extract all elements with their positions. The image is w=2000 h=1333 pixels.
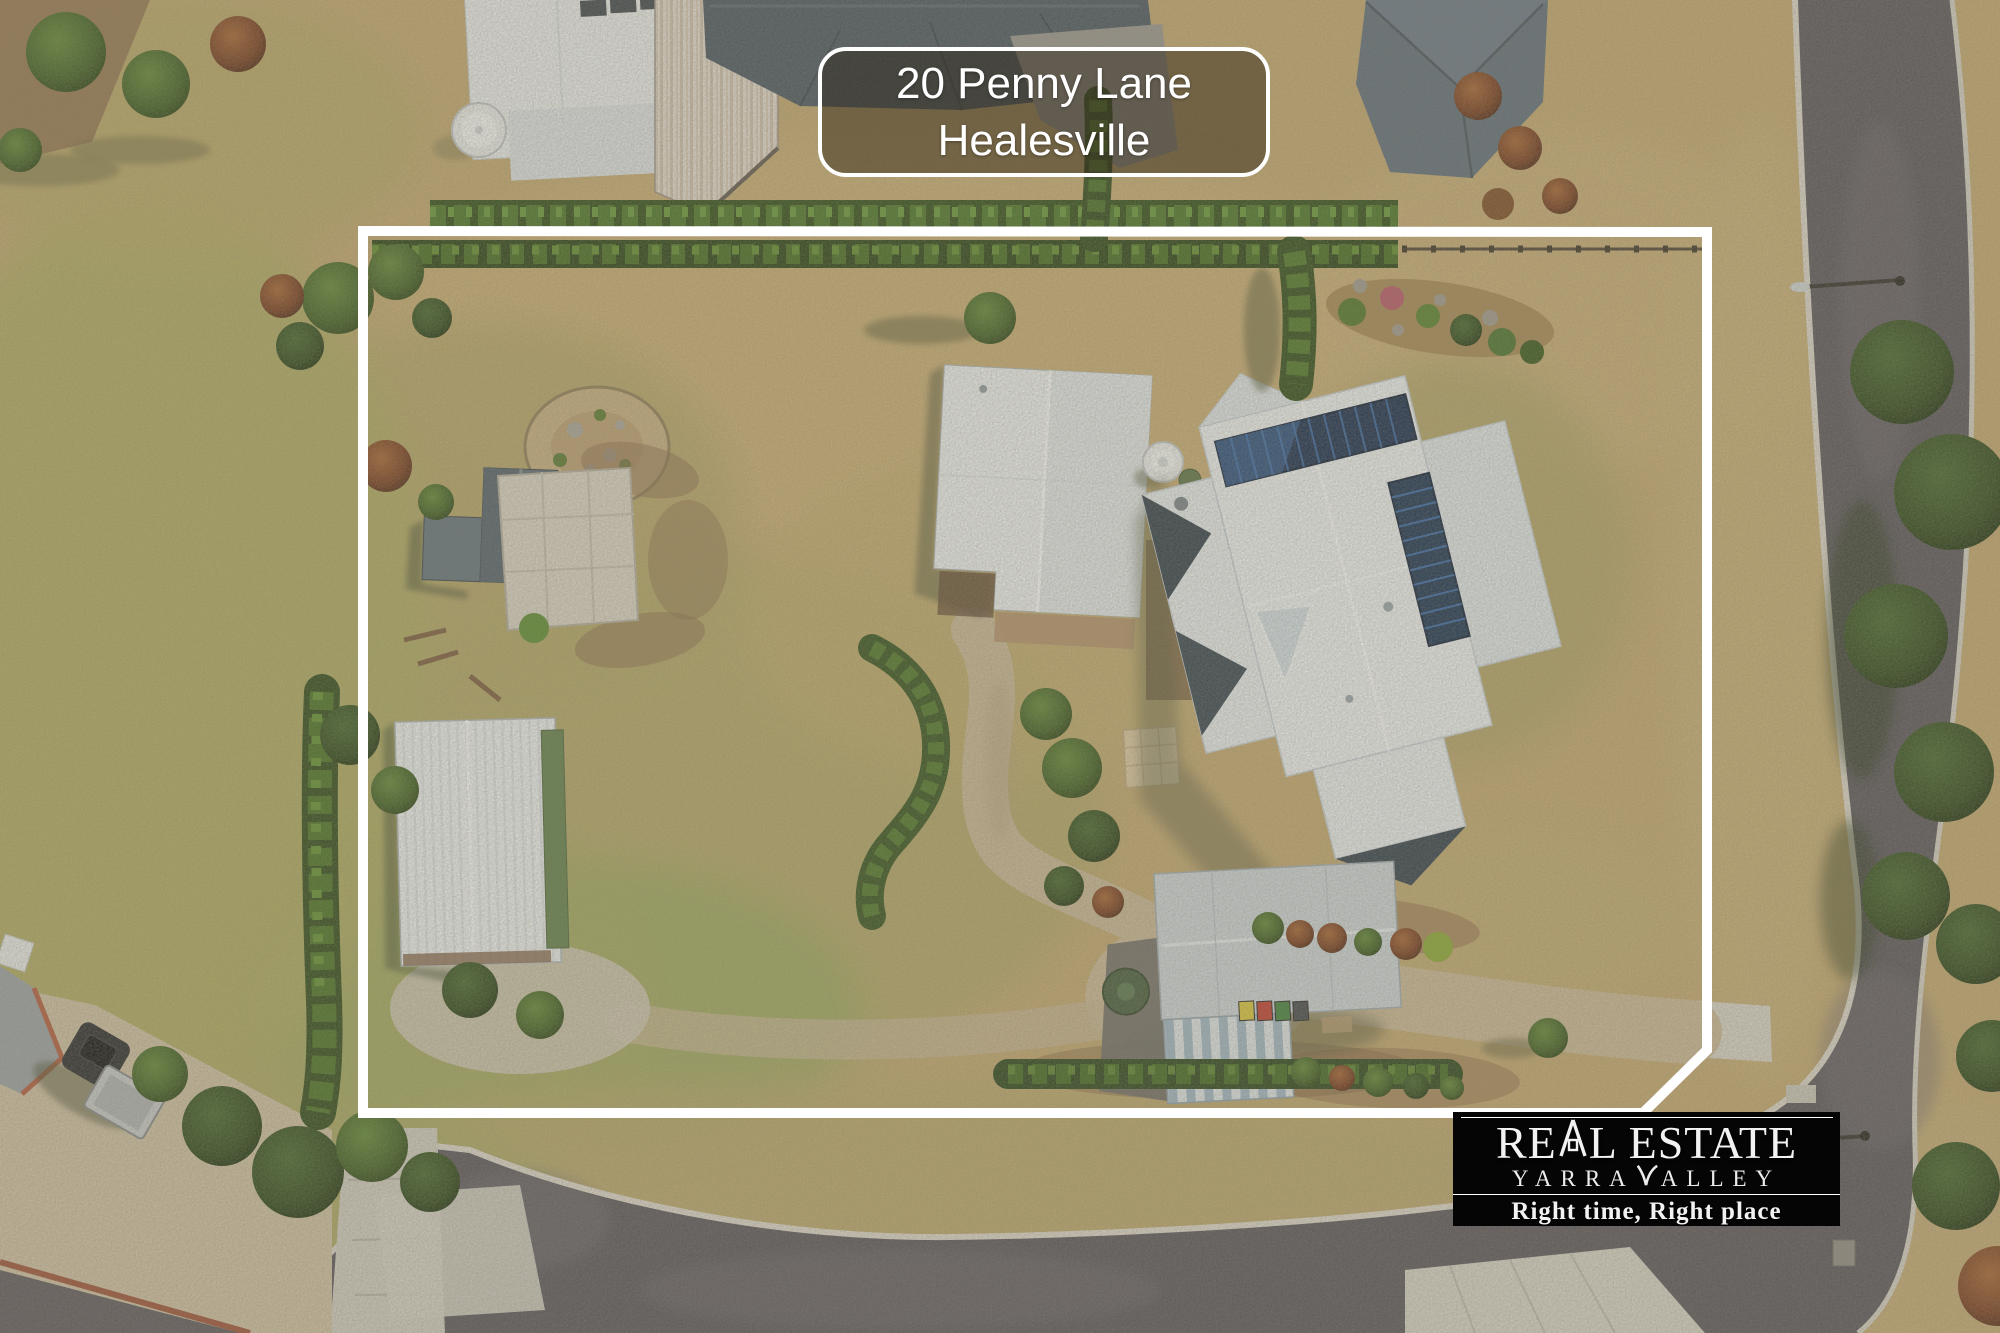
- logo-brand-re: RE: [1496, 1120, 1557, 1166]
- logo-brand-line: RE L ESTATE: [1496, 1119, 1797, 1166]
- logo-brand-lestate: L ESTATE: [1589, 1120, 1797, 1166]
- agency-logo: RE L ESTATE YARRA ALLEY Right time, Righ…: [1453, 1112, 1840, 1226]
- logo-tagline: Right time, Right place: [1511, 1198, 1781, 1226]
- leaf-v-icon: [1635, 1163, 1661, 1193]
- logo-sub-yarra: YARRA: [1512, 1167, 1635, 1190]
- address-label: 20 Penny Lane Healesville: [818, 47, 1270, 177]
- logo-sub-alley: ALLEY: [1661, 1167, 1781, 1190]
- house-a-icon: [1557, 1117, 1589, 1166]
- logo-sub-line: YARRA ALLEY: [1512, 1166, 1781, 1191]
- logo-divider-rule: [1453, 1194, 1840, 1195]
- address-line-2: Healesville: [938, 112, 1151, 169]
- screenshot-root: 20 Penny Lane Healesville RE L ESTATE YA…: [0, 0, 2000, 1333]
- address-line-1: 20 Penny Lane: [896, 55, 1192, 112]
